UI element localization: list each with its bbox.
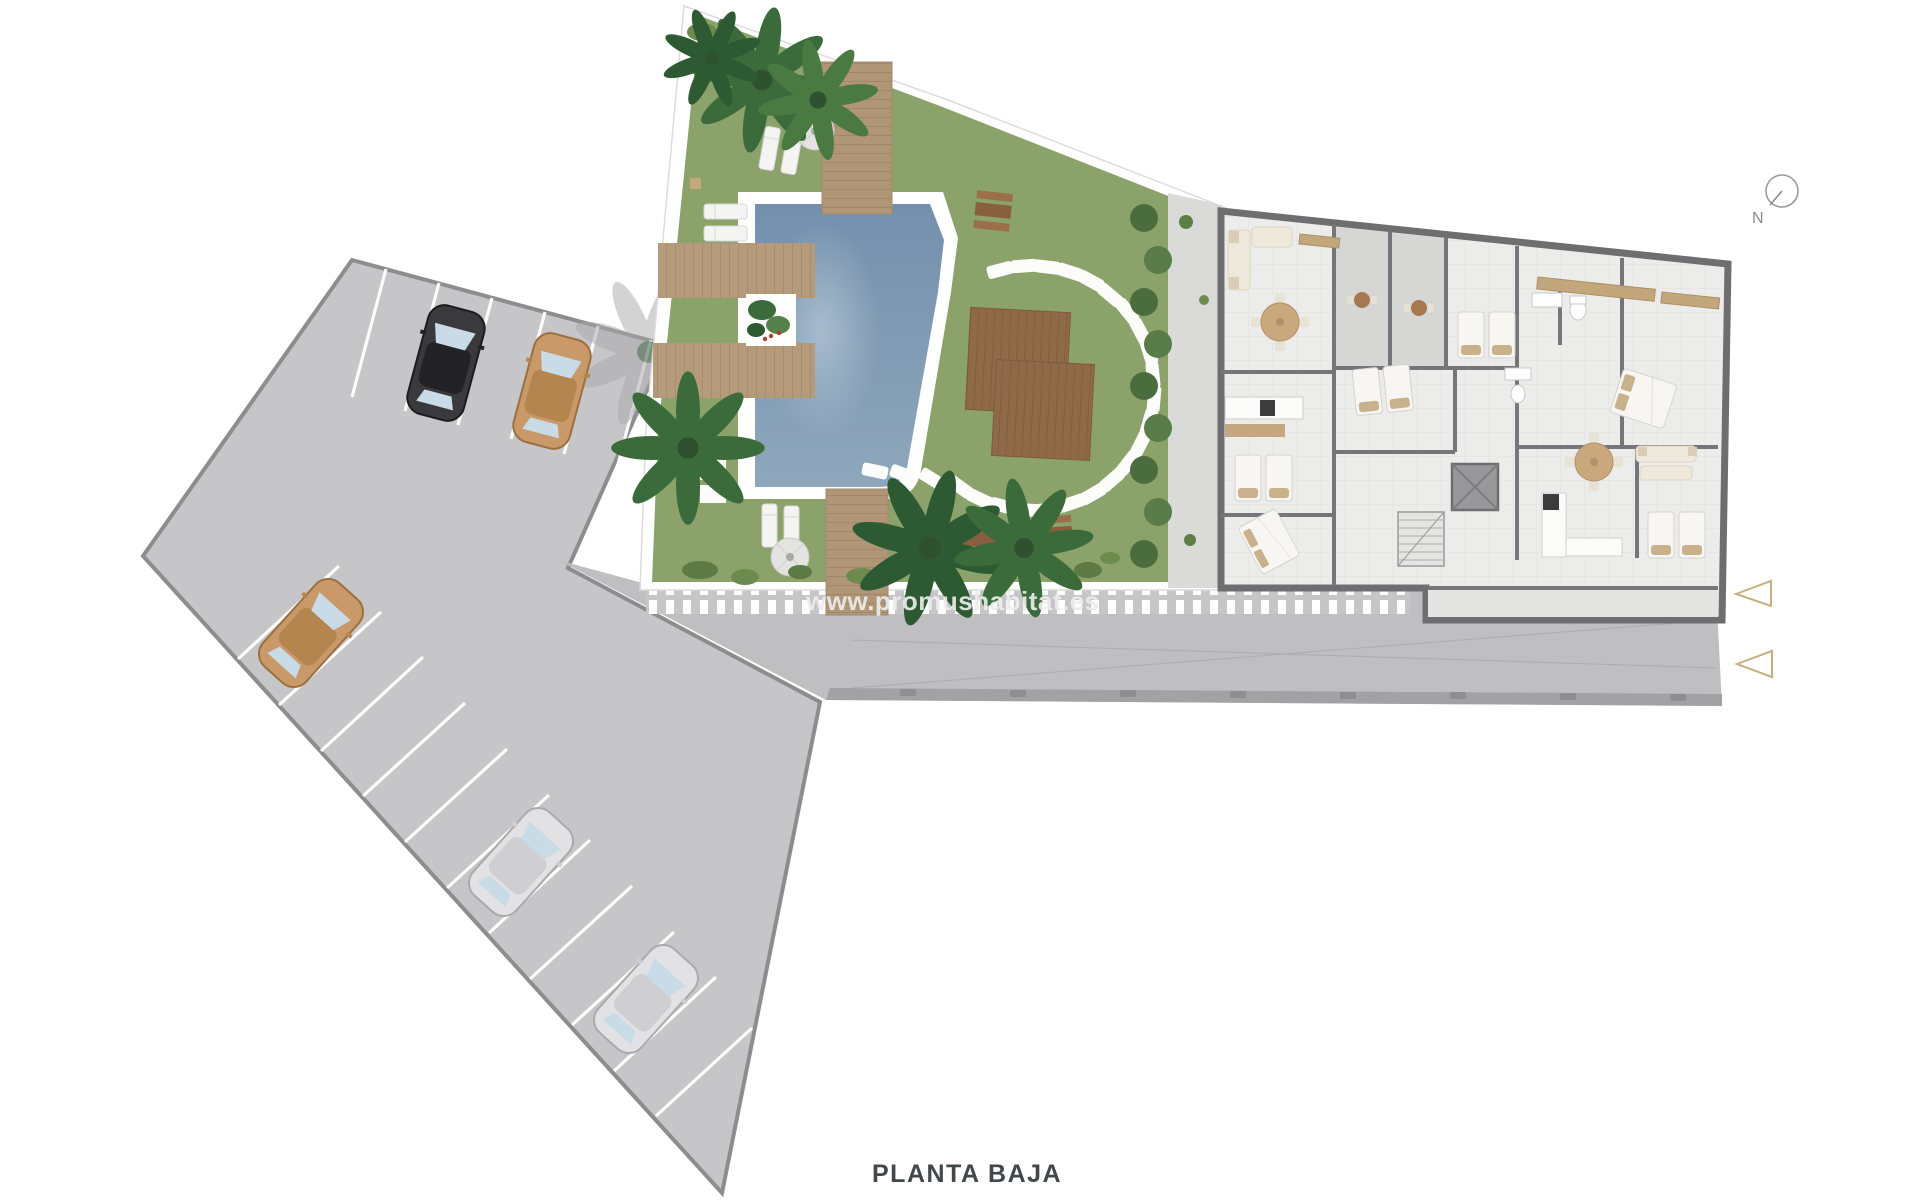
elevator bbox=[1452, 464, 1498, 510]
arrow-left-icon bbox=[1736, 581, 1771, 606]
floor-plan-page: www.promushabitat.es N PLANTA BAJA bbox=[0, 0, 1920, 1200]
floor-title: PLANTA BAJA bbox=[872, 1160, 1072, 1189]
compass-north-label: N bbox=[1752, 210, 1764, 228]
rear-terrace bbox=[1428, 590, 1718, 617]
planter bbox=[746, 294, 796, 346]
garden bbox=[611, 0, 1226, 646]
stairs bbox=[1398, 512, 1444, 566]
building-patio-strip bbox=[1168, 193, 1222, 588]
direction-arrows bbox=[1736, 581, 1772, 677]
north-compass-icon bbox=[1766, 175, 1798, 207]
apartment-building bbox=[1221, 211, 1728, 620]
arrow-left-icon bbox=[1737, 651, 1772, 677]
watermark-url: www.promushabitat.es bbox=[806, 586, 1136, 617]
picnic-table bbox=[973, 190, 1013, 232]
